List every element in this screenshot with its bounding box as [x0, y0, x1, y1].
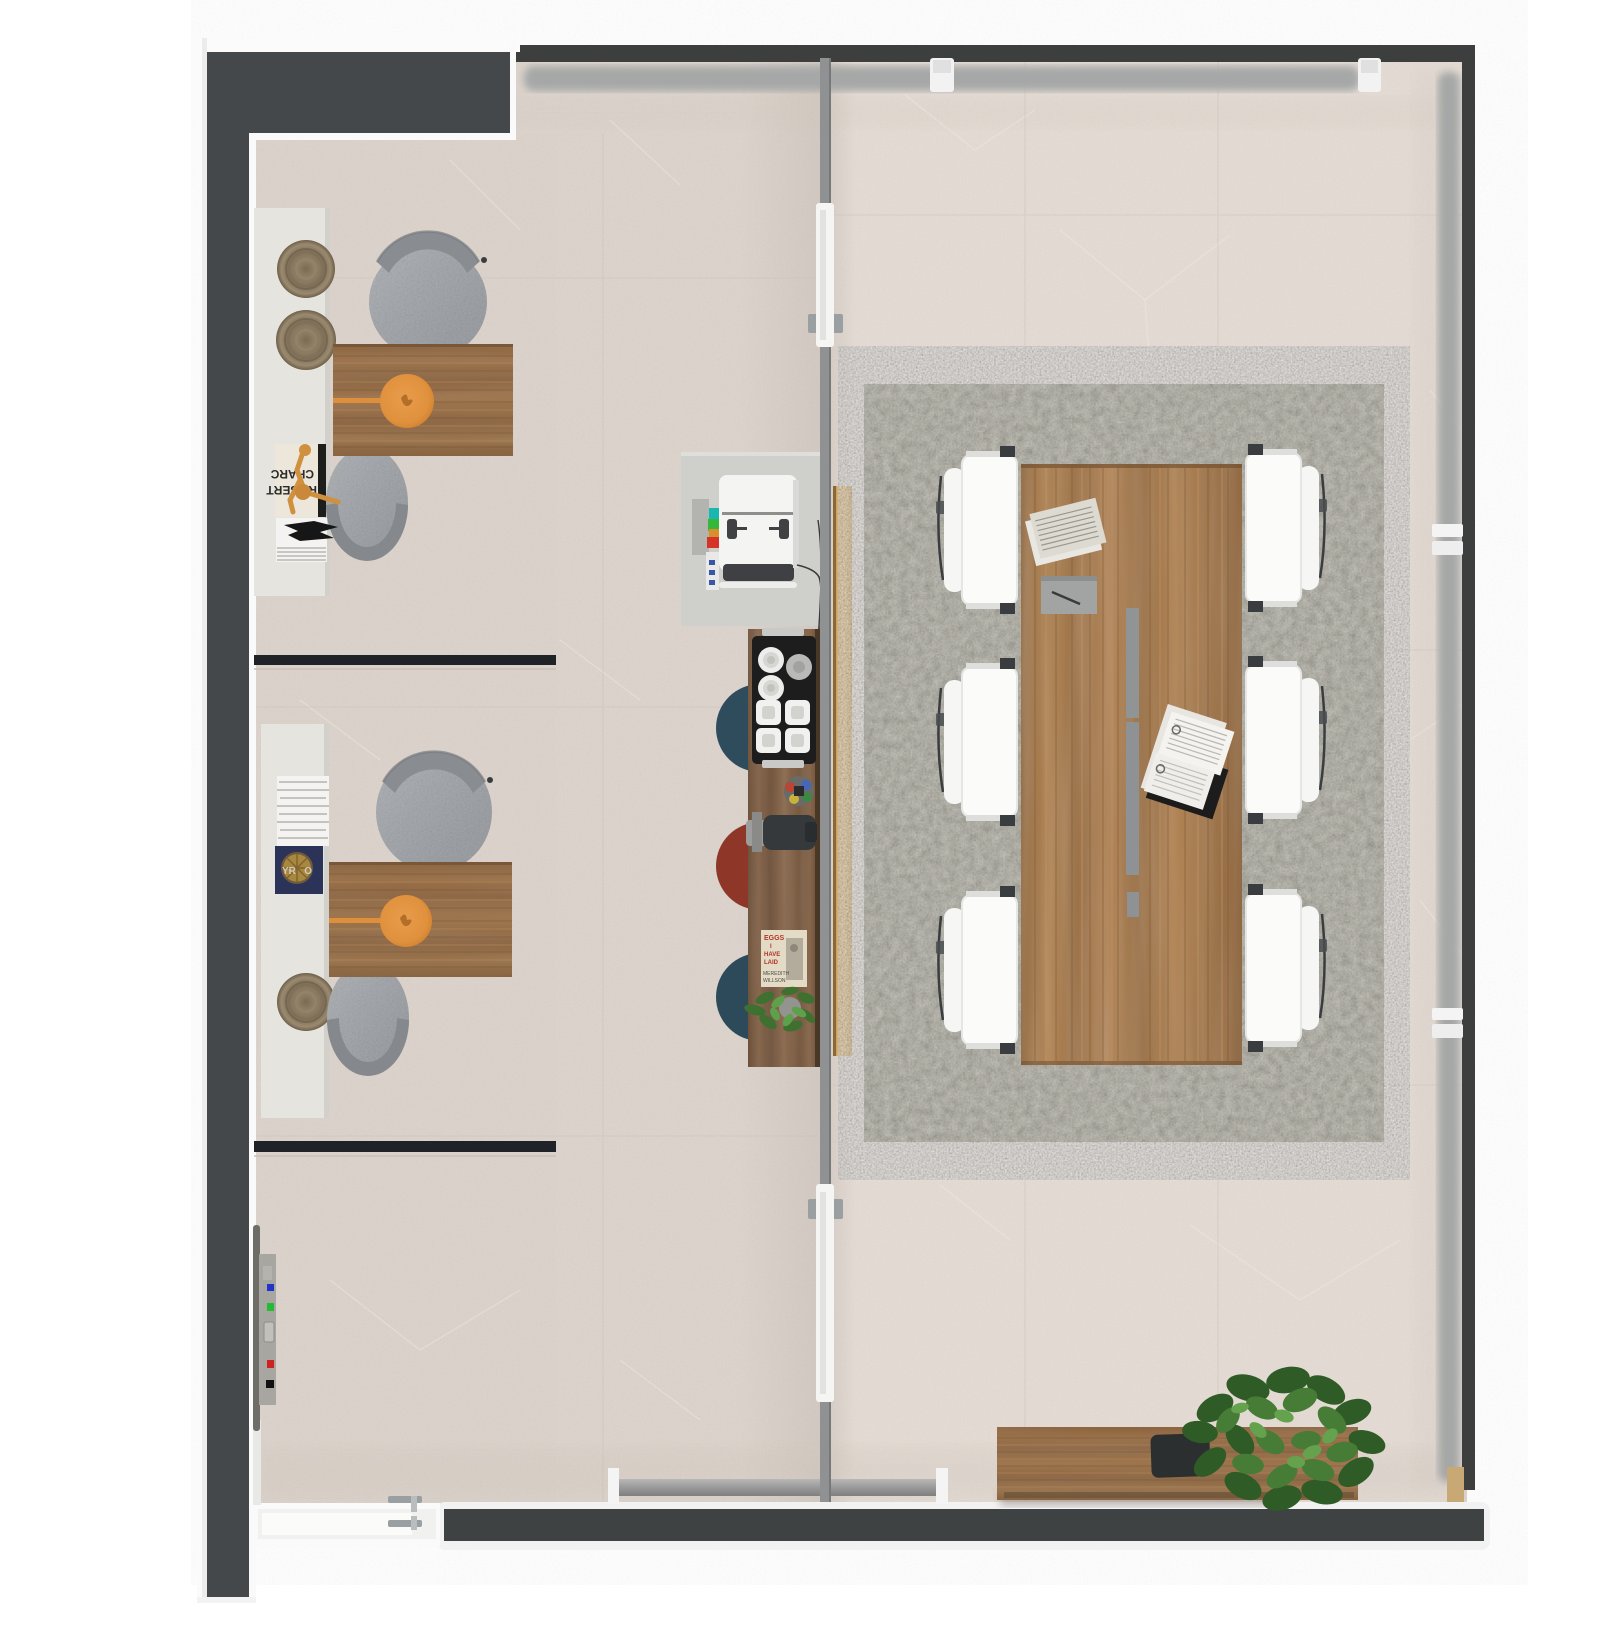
svg-text:MEREDITH: MEREDITH [763, 971, 790, 977]
svg-text:EGGS: EGGS [764, 935, 785, 942]
svg-text:CHARC: CHARC [270, 467, 314, 481]
svg-text:LAID: LAID [764, 960, 779, 966]
svg-text:HAVE: HAVE [764, 952, 780, 958]
svg-text:WILLSON: WILLSON [763, 978, 786, 984]
svg-text:YR O: YR O [282, 866, 312, 877]
